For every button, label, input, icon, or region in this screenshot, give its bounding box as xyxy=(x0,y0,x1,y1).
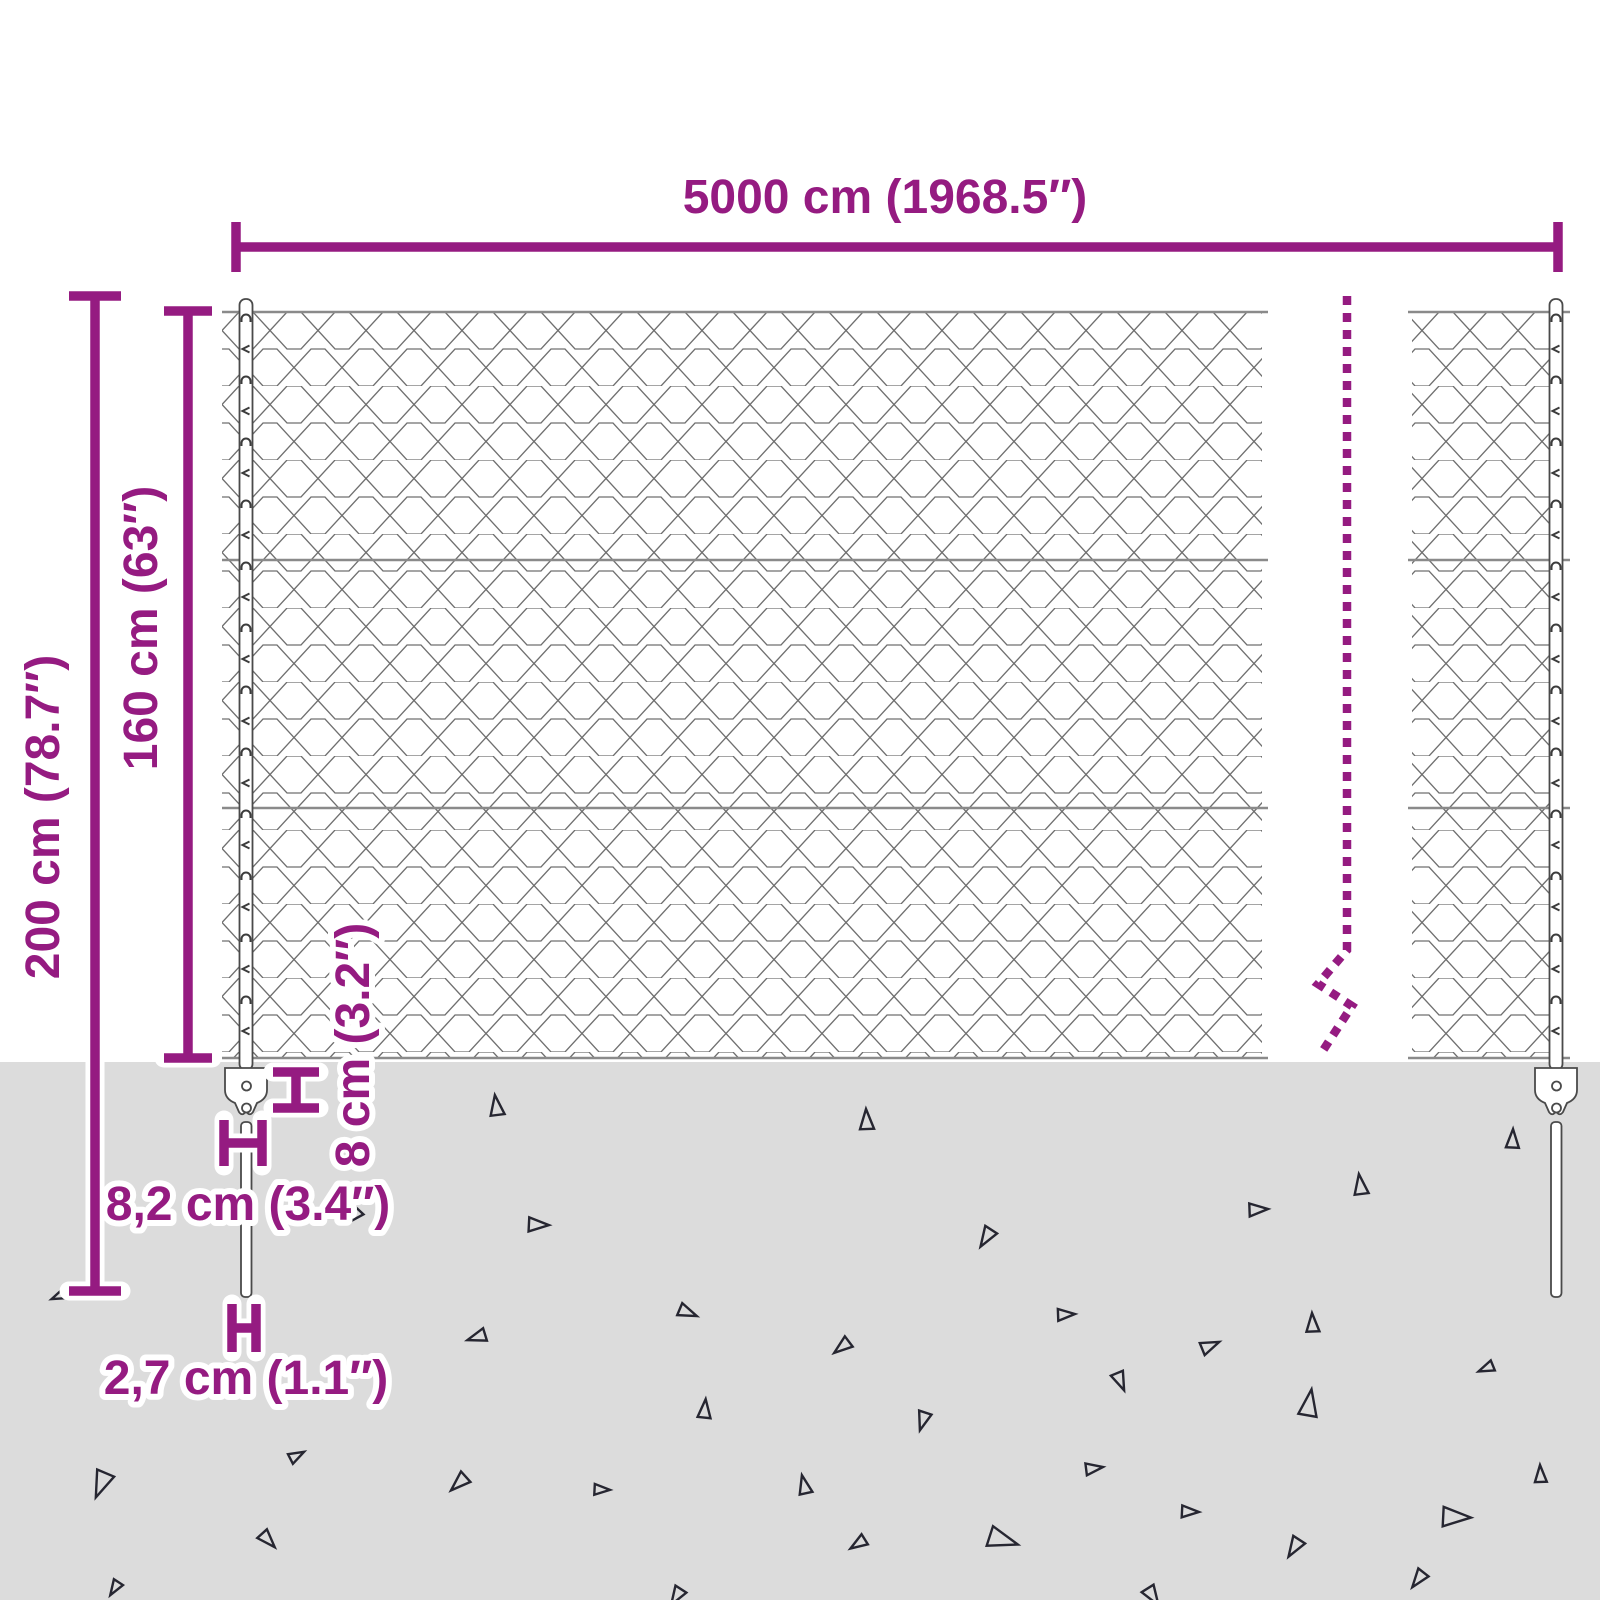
plate-height-dimension-label: 8 cm (3.2″) xyxy=(327,923,380,1167)
mesh-height-dimension xyxy=(164,311,212,1058)
diagram-canvas: 5000 cm (1968.5″) 200 cm (78.7″) 160 cm … xyxy=(0,0,1600,1600)
break-line xyxy=(1318,296,1352,1052)
width-dimension-label: 5000 cm (1968.5″) xyxy=(683,171,1088,224)
fence-dimension-diagram: 5000 cm (1968.5″) 200 cm (78.7″) 160 cm … xyxy=(0,0,1600,1600)
plate-width-dimension-label: 8,2 cm (3.4″) xyxy=(106,1178,390,1231)
total-height-dimension-label: 200 cm (78.7″) xyxy=(17,655,70,980)
right-post-tube xyxy=(1550,299,1563,1070)
post-width-dimension-label: 2,7 cm (1.1″) xyxy=(104,1352,388,1405)
fence-mesh-right xyxy=(1408,312,1570,1058)
mesh-height-dimension-label: 160 cm (63″) xyxy=(115,486,168,770)
left-post-tube xyxy=(240,299,253,1070)
right-post-spike xyxy=(1551,1122,1562,1297)
width-dimension xyxy=(236,222,1558,272)
